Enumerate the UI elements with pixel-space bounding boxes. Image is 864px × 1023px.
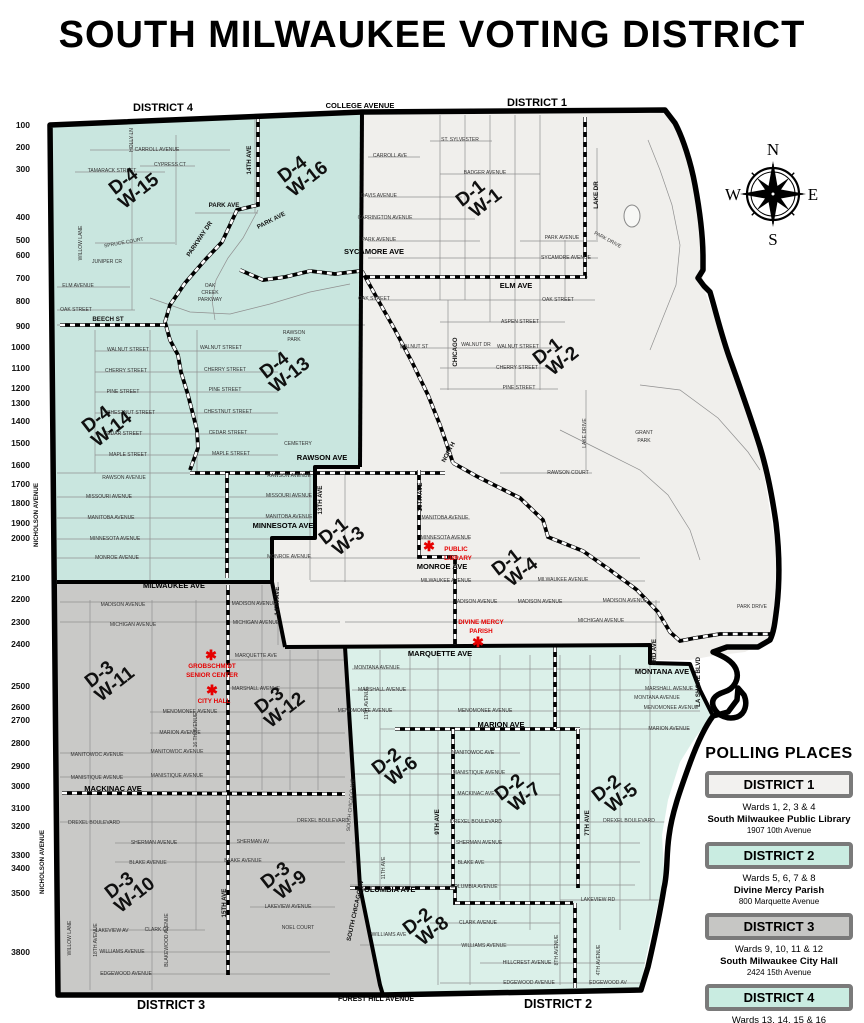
legend-address: 1907 10th Avenue [695,826,863,835]
street-label: MANISTIQUE AVENUE [151,773,204,779]
street-label: MILWAUKEE AVENUE [538,577,589,583]
street-label: OAK STREET [358,296,390,302]
street-label: OAK STREET [542,297,574,303]
polling-places-legend: POLLING PLACES DISTRICT 1Wards 1, 2, 3 &… [695,745,863,1023]
street-label: LAKE DRIVE [582,418,588,448]
street-label: MONROE AVE [417,562,467,571]
street-label: CHERRY STREET [105,368,147,374]
street-label: BEECH ST [92,316,124,323]
street-label: MONTANA AVE [635,667,689,676]
street-label: BADGER AVENUE [464,170,507,176]
street-label: LAKEVIEW RD [581,897,616,903]
legend-wards: Wards 13, 14, 15 & 16 [695,1015,863,1023]
compass-s: S [768,230,777,249]
scale-label: 100 [16,120,30,130]
divine-mercy-parish-marker-icon: ✱ [472,634,484,650]
city-hall-marker-icon: ✱ [206,682,218,698]
street-label: CYPRESS CT [154,162,186,168]
street-label: WILLIAMS AVENUE [461,943,507,949]
street-label: CREEK [201,290,219,296]
scale-label: 1800 [11,498,30,508]
street-label: MICHIGAN AVENUE [233,620,280,626]
street-label: SHERMAN AVENUE [131,840,178,846]
scale-label: 1600 [11,460,30,470]
street-label: RAWSON COURT [547,470,588,476]
legend-wards: Wards 5, 6, 7 & 8 [695,873,863,884]
street-label: PARK AVENUE [362,237,397,243]
street-label: CARROLL AVE [373,153,408,159]
street-label: 10TH AVE [417,483,424,512]
edge-label: DISTRICT 1 [507,97,567,109]
street-label: 3RD AVE [651,639,658,665]
legend-title: POLLING PLACES [695,745,863,763]
legend-wards: Wards 1, 2, 3 & 4 [695,802,863,813]
grobschmidt-senior-center-label: SENIOR CENTER [186,672,238,679]
scale-label: 800 [16,296,30,306]
divine-mercy-parish-label: PARISH [469,628,493,635]
street-label: WALNUT STREET [200,345,242,351]
grobschmidt-senior-center-label: GROBSCHMIDT [188,663,236,670]
scale-label: 1900 [11,518,30,528]
street-label: OAK [205,283,216,289]
edge-label: DISTRICT 2 [524,997,592,1011]
street-label: MANISTIQUE AVENUE [453,770,506,776]
street-label: RAWSON AVENUE [267,473,311,479]
street-label: GRANT [635,430,653,436]
street-label: RAWSON [283,330,306,336]
address-grid-scale: 1002003004005006007008009001000110012001… [11,120,30,957]
street-label: 7TH AVE [584,810,591,835]
legend-wards: Wards 9, 10, 11 & 12 [695,944,863,955]
scale-label: 2700 [11,715,30,725]
street-label: 16 TH AVENUE [193,712,199,747]
street-label: MAPLE STREET [212,451,250,457]
street-label: MANITOBA AVENUE [87,515,135,521]
street-label: NICHOLSON AVENUE [33,483,40,547]
street-label: ASPEN STREET [501,319,539,325]
scale-label: 2000 [11,533,30,543]
scale-label: 2100 [11,573,30,583]
street-label: 15TH AVE [221,889,228,918]
street-label: MILWAUKEE AVE [143,581,205,590]
street-label: MADISON AVENUE [232,601,277,607]
street-label: RAWSON AVE [297,453,347,462]
scale-label: 2900 [11,761,30,771]
scale-label: 3000 [11,781,30,791]
street-label: PARKWAY [198,297,223,303]
street-label: 18TH AVENUE [93,923,99,957]
edge-label: DISTRICT 3 [137,998,205,1012]
street-label: DREXEL BOULEVARD [603,818,655,824]
street-label: NOEL COURT [282,925,315,931]
street-label: BLAKEWOOD AVENUE [164,913,170,967]
street-label: MADISON AVENUE [101,602,146,608]
street-label: LAKEVIEW AV [96,928,130,934]
street-label: LAKEVIEW AVENUE [265,904,313,910]
street-label: MADISON AVENUE [603,598,648,604]
street-label: MACKINAC AVE [457,791,495,797]
street-label: MANITOBA AVENUE [265,514,313,520]
street-label: EDGEWOOD AV [589,980,627,986]
street-label: WALNUT DR [461,342,491,348]
public-library-label: PUBLIC [444,546,468,553]
street-label: RAWSON AVENUE [102,475,146,481]
ward-boundary-dashes [62,793,345,794]
street-label: PARK AVE [209,202,240,209]
street-label: PINE STREET [107,389,140,395]
street-label: MINNESOTA AVENUE [90,536,141,542]
street-label: HOLLY LN [129,128,135,152]
legend-place: South Milwaukee Public Library [695,814,863,825]
street-label: 9TH AVE [434,809,441,834]
scale-label: 1700 [11,479,30,489]
scale-label: 700 [16,273,30,283]
street-label: MICHIGAN AVENUE [578,618,625,624]
scale-label: 1400 [11,416,30,426]
scale-label: 600 [16,250,30,260]
street-label: MARQUETTE AVE [408,649,472,658]
street-label: PARK [637,438,651,444]
street-label: MADISON AVENUE [453,599,498,605]
grobschmidt-senior-center-marker-icon: ✱ [205,647,217,663]
street-label: SYCAMORE AVE [344,247,404,256]
street-label: MADISON AVENUE [518,599,563,605]
street-label: PARK DRIVE [737,604,768,610]
street-label: MONROE AVENUE [267,554,311,560]
edge-label: DISTRICT 4 [133,102,194,114]
street-label: 13TH AVE [317,486,324,515]
compass-e: E [808,185,818,204]
scale-label: 200 [16,142,30,152]
street-label: 14TH AVE [246,146,253,175]
street-label: MANITOWOC AVENUE [71,752,125,758]
scale-label: 3200 [11,821,30,831]
compass-n: N [767,140,779,159]
legend-entry-district-3: DISTRICT 3Wards 9, 10, 11 & 12South Milw… [695,913,863,977]
street-label: BLAKE AVENUE [129,860,167,866]
street-label: OAK STREET [60,307,92,313]
street-label: DREXEL BOULEVARD [450,819,502,825]
street-label: MONTANA AVENUE [354,665,400,671]
scale-label: 1100 [12,363,31,373]
street-label: BLAKE AVENUE [224,858,262,864]
scale-label: 2200 [11,594,30,604]
street-label: PINE STREET [503,385,536,391]
street-label: EDGEWOOD AVENUE [100,971,152,977]
street-label: MACKINAC AVE [84,784,142,793]
scale-label: 900 [16,321,30,331]
street-label: MICHIGAN AVENUE [110,622,157,628]
street-label: ELM AVE [500,281,533,290]
street-label: MANITOWOC AVENUE [151,749,205,755]
legend-district-box: DISTRICT 4 [705,984,853,1011]
street-label: MINNESOTA AVE [253,521,314,530]
street-label: MENOMONEE AVENUE [163,709,218,715]
street-label: COLUMBIA AVE [359,885,416,894]
street-label: COLUMBIA AVENUE [450,884,498,890]
street-label: HILLCREST AVENUE [503,960,552,966]
street-label: CARRINGTON AVENUE [358,215,413,221]
street-label: BLAKE AVE [458,860,486,866]
street-label: MANISTIQUE AVENUE [71,775,124,781]
legend-place: South Milwaukee City Hall [695,956,863,967]
street-label: PINE STREET [209,387,242,393]
grant-park-pond [624,205,640,227]
street-label: MANITOWOC AVE [452,750,495,756]
scale-label: 2600 [11,702,30,712]
street-label: LAKE DR [593,181,600,209]
street-label: CARROLL AVENUE [135,147,180,153]
compass-rose: N S W E [725,140,818,249]
scale-label: 1300 [11,398,30,408]
street-label: MENOMONEE AVENUE [458,708,513,714]
street-label: ELM AVENUE [62,283,94,289]
scale-label: 500 [16,235,30,245]
street-label: WALNUT STREET [107,347,149,353]
scale-label: 1000 [11,342,30,352]
street-label: WILLOW LANE [67,920,73,955]
legend-entry-district-4: DISTRICT 4Wards 13, 14, 15 & 16Grobschmi… [695,984,863,1023]
scale-label: 2800 [11,738,30,748]
scale-label: 1500 [11,438,30,448]
street-label: CLARK AVENUE [459,920,498,926]
public-library-label: LIBRARY [444,555,473,562]
street-label: WALNUT ST [400,344,429,350]
street-label: NICHOLSON AVENUE [39,830,46,894]
street-label: MARQUETTE AVE [235,653,278,659]
legend-district-box: DISTRICT 2 [705,842,853,869]
scale-label: 400 [16,212,30,222]
street-label: SHERMAN AV [237,839,270,845]
street-label: PARK [287,337,301,343]
street-label: CHICAGO [452,337,459,366]
legend-place: Divine Mercy Parish [695,885,863,896]
scale-label: 2300 [11,617,30,627]
street-label: MAPLE STREET [109,452,147,458]
street-label: MONTANA AVENUE [634,695,680,701]
street-label: WILLIAMS AVENUE [99,949,145,955]
street-label: MENOMONEE AVENUE [644,705,699,711]
district-boundary-line [360,112,362,467]
street-label: WILLIAMS AVE [372,932,407,938]
legend-address: 2424 15th Avenue [695,968,863,977]
scale-label: 2500 [11,681,30,691]
street-label: MARION AVENUE [648,726,690,732]
scale-label: 1200 [11,383,30,393]
street-label: LA SHORE BLVD [695,657,702,707]
map-page: SOUTH MILWAUKEE VOTING DISTRICT CARROLL … [0,0,864,1023]
legend-district-box: DISTRICT 1 [705,771,853,798]
legend-entry-district-1: DISTRICT 1Wards 1, 2, 3 & 4South Milwauk… [695,771,863,835]
scale-label: 3300 [11,850,30,860]
public-library-marker-icon: ✱ [423,538,435,554]
street-label: CHERRY STREET [496,365,538,371]
street-label: MILWAUKEE AVENUE [421,578,472,584]
legend-entry-district-2: DISTRICT 2Wards 5, 6, 7 & 8Divine Mercy … [695,842,863,906]
street-label: MISSOURI AVENUE [266,493,313,499]
street-label: CHESTNUT STREET [204,409,252,415]
street-label: JUNIPER CR [92,259,122,265]
street-label: MONROE AVENUE [95,555,139,561]
legend-address: 800 Marquette Avenue [695,897,863,906]
street-label: ST. SYLVESTER [441,137,479,143]
street-label: DAVIS AVENUE [361,193,398,199]
legend-district-box: DISTRICT 3 [705,913,853,940]
street-label: CEDAR STREET [209,430,248,436]
scale-label: 300 [16,164,30,174]
street-label: CEMETERY [284,441,312,447]
city-hall-label: CITY HALL [198,698,231,705]
street-label: DREXEL BOULEVARD [68,820,120,826]
street-label: MISSOURI AVENUE [86,494,133,500]
scale-label: 3400 [11,863,30,873]
edge-label: FOREST HILL AVENUE [338,996,414,1003]
scale-label: 2400 [11,639,30,649]
street-label: MANITOBA AVENUE [421,515,469,521]
scale-label: 3800 [11,947,30,957]
street-label: SHERMAN AVENUE [456,840,503,846]
street-label: SYCAMORE AVENUE [541,255,592,261]
street-label: PARK AVENUE [545,235,580,241]
street-label: 4TH AVENUE [596,944,602,975]
divine-mercy-parish-label: DIVINE MERCY [458,619,504,626]
street-label: MARION AVE [477,720,524,729]
street-label: 8TH AVENUE [554,934,560,965]
scale-label: 3500 [11,888,30,898]
edge-label: COLLEGE AVENUE [326,101,395,110]
street-label: CHERRY STREET [204,367,246,373]
street-label: MARSHALL AVENUE [645,686,694,692]
street-label: 11TH AVENUE [364,686,370,720]
street-label: EDGEWOOD AVENUE [503,980,555,986]
street-label: WILLOW LANE [78,225,84,260]
street-label: DREXEL BOULEVARD [297,818,349,824]
compass-w: W [725,185,742,204]
scale-label: 3100 [11,803,30,813]
street-label: 11TH AVE [381,856,387,879]
